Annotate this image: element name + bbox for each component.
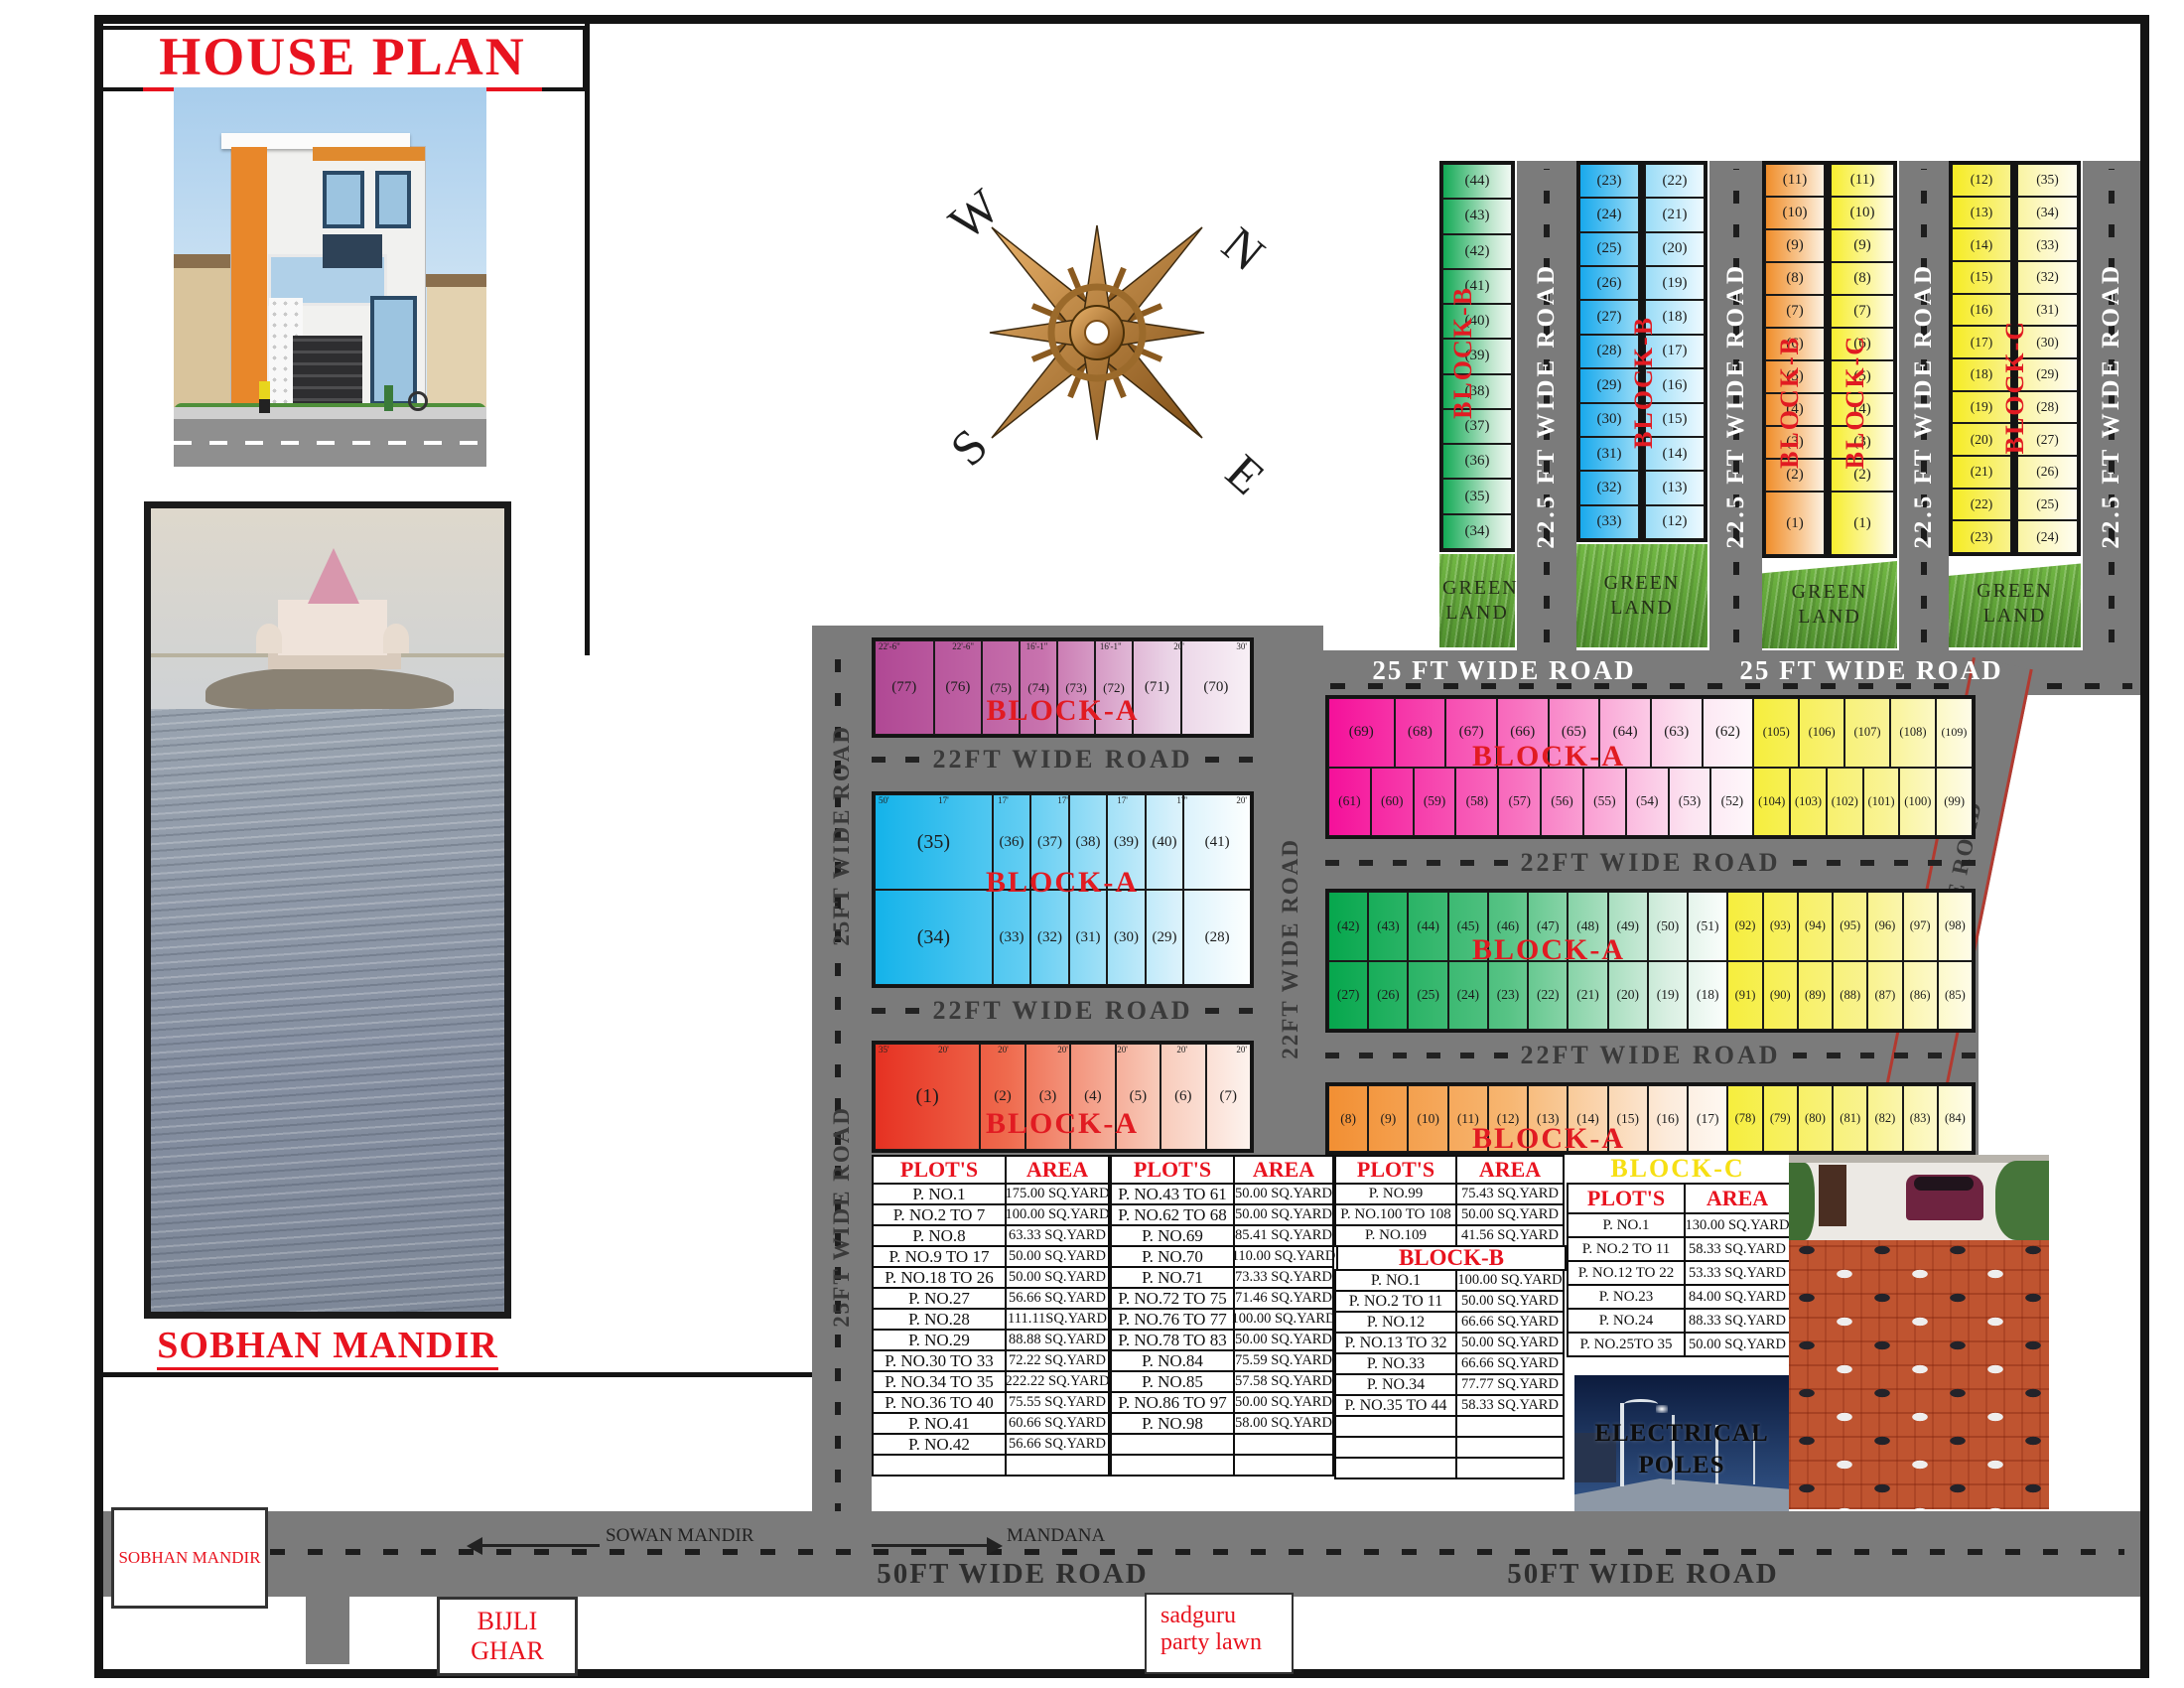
plot-cell: (43) <box>1442 199 1512 233</box>
plot-cell: (31) <box>1069 890 1108 985</box>
plot-cell: (80) <box>1798 1085 1833 1152</box>
area-cell: 50.00 SQ.YARD <box>1684 1332 1791 1357</box>
bicycle-wheel <box>408 391 428 411</box>
plot-cell: (25) <box>1408 961 1447 1031</box>
table-row: P. NO.43 TO 61 50.00 SQ.YARD <box>1112 1183 1336 1205</box>
road-22ft-right-2-dash-l <box>1325 1053 1508 1058</box>
plot-table-2-rows: P. NO.43 TO 61 50.00 SQ.YARD P. NO.62 TO… <box>1112 1183 1336 1477</box>
table-row: P. NO.12 66.66 SQ.YARD <box>1336 1311 1567 1334</box>
plot-no-cell: P. NO.2 TO 11 <box>1567 1236 1686 1262</box>
area-cell: 88.88 SQ.YARD <box>1005 1329 1110 1351</box>
table-row: P. NO.85 57.58 SQ.YARD <box>1112 1370 1336 1393</box>
road-22ft-right-1-label: 22FT WIDE ROAD <box>1520 848 1780 878</box>
area-cell: 66.66 SQ.YARD <box>1455 1352 1565 1375</box>
area-cell: 66.66 SQ.YARD <box>1455 1311 1565 1334</box>
road-225-a: 22.5 FT WIDE ROAD <box>1517 161 1576 650</box>
plot-cell: (98) <box>1938 892 1973 961</box>
plot-cell: (81) <box>1833 1085 1867 1152</box>
table-row: P. NO.86 TO 97 50.00 SQ.YARD <box>1112 1391 1336 1414</box>
road-22ft-left-1-dash-r <box>1205 757 1254 763</box>
house-plan-layout: HOUSE PLAN <box>0 0 2184 1688</box>
block-a-pink-label: BLOCK-A <box>1430 741 1668 773</box>
plot-cell: (8) <box>1328 1085 1368 1152</box>
pink-top-yellow-cells: (105)(106)(107)(108)(109) <box>1753 698 1973 768</box>
dim-label: 17' <box>938 795 949 805</box>
road-22ft-right-2-dash-r <box>1793 1053 1976 1058</box>
green-land-1-label: GREEN LAND <box>1442 576 1512 626</box>
plot-no-cell: P. NO.12 <box>1334 1311 1457 1334</box>
plot-cell: (27) <box>1328 961 1368 1031</box>
plot-no-cell: P. NO.109 <box>1334 1224 1457 1247</box>
plot-no-cell: P. NO.35 TO 44 <box>1334 1394 1457 1417</box>
area-cell: 50.00 SQ.YARD <box>1455 1290 1565 1313</box>
plot-no-cell: P. NO.100 TO 108 <box>1334 1203 1457 1226</box>
plot-cell: (26) <box>1368 961 1408 1031</box>
area-cell: 58.33 SQ.YARD <box>1455 1394 1565 1417</box>
table-row: P. NO.12 TO 22 53.33 SQ.YARD <box>1569 1260 1793 1286</box>
table-row <box>1112 1433 1336 1456</box>
plot-no-cell: P. NO.8 <box>872 1224 1007 1247</box>
plot-cell: (9) <box>1368 1085 1408 1152</box>
plot-cell: (97) <box>1903 892 1938 961</box>
plot-cell: (23) <box>1488 961 1528 1031</box>
area-cell: 50.00 SQ.YARD <box>1005 1245 1110 1268</box>
green-land-2-label: GREEN LAND <box>1602 571 1682 621</box>
plot-cell: (17) <box>1688 1085 1727 1152</box>
plot-no-cell <box>1110 1454 1235 1477</box>
plot-cell: (82) <box>1867 1085 1902 1152</box>
bijli-ghar-label: BIJLI GHAR <box>440 1607 575 1666</box>
dim-label: 17' <box>1176 795 1187 805</box>
road-22ft-right-1-dash-l <box>1325 860 1508 866</box>
table-row: P. NO.1 130.00 SQ.YARD <box>1569 1212 1793 1238</box>
plot-cell: (53) <box>1669 768 1711 837</box>
plot-cell: (52) <box>1710 768 1753 837</box>
title-box: HOUSE PLAN <box>98 26 587 91</box>
road-225-d: 22.5 FT WIDE ROAD <box>2083 161 2140 650</box>
plot-cell: (23) <box>1579 164 1639 198</box>
road-225-d-label: 22.5 FT WIDE ROAD <box>2098 263 2125 549</box>
table-row: P. NO.109 41.56 SQ.YARD <box>1336 1224 1567 1247</box>
plot-cell: (55) <box>1583 768 1626 837</box>
temple-caption: SOBHAN MANDIR <box>157 1324 497 1370</box>
plot-cell: (109) <box>1936 698 1973 768</box>
block-a-green-label: BLOCK-A <box>1430 933 1668 967</box>
dim-label: 20' <box>1236 795 1247 805</box>
plot-cell: (34) <box>875 890 993 985</box>
person-yellow <box>259 381 270 399</box>
block-c-pair-label-wrap: BLOCK-C <box>1997 263 2033 511</box>
pv-paver-pattern <box>1789 1240 2049 1509</box>
table-row: P. NO.24 88.33 SQ.YARD <box>1569 1308 1793 1334</box>
water-ripples <box>151 709 511 1319</box>
plot-table-3-bottom-rows: P. NO.1 100.00 SQ.YARD P. NO.2 TO 11 50.… <box>1336 1269 1567 1479</box>
area-cell: 75.59 SQ.YARD <box>1233 1349 1334 1372</box>
page-title: HOUSE PLAN <box>143 26 542 91</box>
table-row: P. NO.62 TO 68 50.00 SQ.YARD <box>1112 1203 1336 1226</box>
dim-label: 17' <box>1117 795 1128 805</box>
block-c-table-rows: P. NO.1 130.00 SQ.YARD P. NO.2 TO 11 58.… <box>1569 1212 1793 1357</box>
plot-table-3-top-rows: P. NO.99 75.43 SQ.YARD P. NO.100 TO 108 … <box>1336 1183 1567 1247</box>
plot-cell: (79) <box>1763 1085 1798 1152</box>
purple-dims: 22'-6"22'-6"16'-1"16'-1"20'30' <box>879 641 1247 651</box>
mandana-arrow-line <box>872 1544 989 1547</box>
plot-cell: (9) <box>1765 229 1825 262</box>
green-top-yellow-cells: (92)(93)(94)(95)(96)(97)(98) <box>1727 892 1973 961</box>
plot-no-cell: P. NO.98 <box>1110 1412 1235 1435</box>
area-cell: 53.33 SQ.YARD <box>1684 1260 1791 1286</box>
block-c-tag: BLOCK-C <box>1569 1155 1787 1183</box>
plot-cell: (33) <box>2017 228 2078 261</box>
table-row: P. NO.100 TO 108 50.00 SQ.YARD <box>1336 1203 1567 1226</box>
area-cell: 75.55 SQ.YARD <box>1005 1391 1110 1414</box>
table-row: P. NO.42 56.66 SQ.YARD <box>874 1433 1112 1456</box>
dim-label: 17' <box>1057 795 1068 805</box>
plot-cell: (96) <box>1867 892 1902 961</box>
plot-cell: (9) <box>1831 229 1894 262</box>
block-c-pair-label: BLOCK-C <box>2000 320 2030 454</box>
temple-body <box>278 600 387 655</box>
pink-bottom-yellow-cells: (104)(103)(102)(101)(100)(99) <box>1753 768 1973 837</box>
table-row: P. NO.33 66.66 SQ.YARD <box>1336 1352 1567 1375</box>
road-50ft-label-1: 50FT WIDE ROAD <box>854 1559 1171 1589</box>
plot-table-2: PLOT'S AREA P. NO.43 TO 61 50.00 SQ.YARD… <box>1112 1155 1336 1477</box>
plot-no-cell: P. NO.43 TO 61 <box>1110 1183 1235 1205</box>
table-row: P. NO.70 110.00 SQ.YARD <box>1112 1245 1336 1268</box>
plot-cell: (101) <box>1863 768 1900 837</box>
ep-lamp-glow <box>1656 1405 1668 1413</box>
area-cell: 100.00 SQ.YARD <box>1455 1269 1565 1292</box>
plot-cell: (106) <box>1799 698 1844 768</box>
table-row: P. NO.71 73.33 SQ.YARD <box>1112 1266 1336 1289</box>
plot-no-cell: P. NO.84 <box>1110 1349 1235 1372</box>
plot-no-cell: P. NO.85 <box>1110 1370 1235 1393</box>
area-cell: 72.22 SQ.YARD <box>1005 1349 1110 1372</box>
house-window-upper-1 <box>323 171 364 228</box>
dim-label: 20' <box>1176 1045 1187 1055</box>
road-50ft-label-2: 50FT WIDE ROAD <box>1479 1559 1807 1589</box>
area-cell: 58.33 SQ.YARD <box>1684 1236 1791 1262</box>
plot-cell: (24) <box>1448 961 1488 1031</box>
road-22ft-right-1-dash-r <box>1793 860 1976 866</box>
area-cell: 73.33 SQ.YARD <box>1233 1266 1334 1289</box>
green-land-2: GREEN LAND <box>1576 544 1707 647</box>
sobhan-mandir-photo <box>144 501 511 1319</box>
sadguru-box: sadguru party lawn <box>1145 1593 1294 1674</box>
house-window-mid <box>323 234 382 268</box>
dim-label: 22'-6" <box>952 641 974 651</box>
area-cell: 100.00 SQ.YARD <box>1233 1308 1334 1331</box>
plot-no-cell: P. NO.24 <box>1567 1308 1686 1334</box>
plot-no-cell <box>1334 1457 1457 1479</box>
person-green <box>384 385 393 411</box>
table-row: P. NO.98 58.00 SQ.YARD <box>1112 1412 1336 1435</box>
neighbor-house-left <box>174 266 233 410</box>
plot-cell: (32) <box>1030 890 1069 985</box>
temple-dome-right <box>383 624 409 653</box>
table-row: P. NO.2 TO 11 50.00 SQ.YARD <box>1336 1290 1567 1313</box>
dim-label: 16'-1" <box>1026 641 1048 651</box>
plot-no-cell: P. NO.9 TO 17 <box>872 1245 1007 1268</box>
table-row: P. NO.23 84.00 SQ.YARD <box>1569 1284 1793 1310</box>
mandana-arrow-head <box>987 1537 1003 1555</box>
plot-no-cell: P. NO.2 TO 7 <box>872 1203 1007 1226</box>
plot-table-1-rows: P. NO.1 175.00 SQ.YARD P. NO.2 TO 7 100.… <box>874 1183 1112 1477</box>
road-22ft-mid-vertical-label-wrap: 22FT WIDE ROAD <box>1259 774 1322 1122</box>
temple-dome-left <box>256 624 282 653</box>
area-header: AREA <box>1233 1155 1334 1185</box>
block-a-orange-label: BLOCK-A <box>1430 1124 1668 1154</box>
plot-no-cell: P. NO.70 <box>1110 1245 1235 1268</box>
plot-cell: (11) <box>1831 164 1894 197</box>
road-22ft-left-2: 22FT WIDE ROAD <box>872 999 1254 1023</box>
plot-no-cell: P. NO.76 TO 77 <box>1110 1308 1235 1331</box>
sobhan-mandir-box: SOBHAN MANDIR <box>111 1507 268 1609</box>
plot-cell: (85) <box>1938 961 1973 1031</box>
road-22ft-right-2-label: 22FT WIDE ROAD <box>1520 1041 1780 1070</box>
road-stub <box>306 1597 349 1664</box>
block-b-blue-label: BLOCK-B <box>1629 316 1659 449</box>
plot-no-cell: P. NO.41 <box>872 1412 1007 1435</box>
plot-no-cell: P. NO.18 TO 26 <box>872 1266 1007 1289</box>
table-row: P. NO.18 TO 26 50.00 SQ.YARD <box>874 1266 1112 1289</box>
plot-no-cell <box>1334 1436 1457 1459</box>
plot-cell: (104) <box>1753 768 1790 837</box>
block-c-yellow-label-wrap: BLOCK-C <box>1839 278 1872 526</box>
plot-cell: (23) <box>1952 520 2011 553</box>
sowan-arrow-line <box>482 1544 600 1547</box>
area-cell: 75.43 SQ.YARD <box>1455 1183 1565 1205</box>
plot-no-cell: P. NO.33 <box>1334 1352 1457 1375</box>
area-cell: 77.77 SQ.YARD <box>1455 1373 1565 1396</box>
plot-no-cell: P. NO.36 TO 40 <box>872 1391 1007 1414</box>
plot-cell: (91) <box>1727 961 1762 1031</box>
plot-cell: (89) <box>1798 961 1833 1031</box>
plot-no-cell: P. NO.29 <box>872 1329 1007 1351</box>
plot-cell: (10) <box>1831 197 1894 229</box>
block-b-orange-label: BLOCK-B <box>1775 336 1805 469</box>
pink-bottom-row: (61)(60)(59)(58)(57)(56)(55)(54)(53)(52)… <box>1328 768 1973 837</box>
plot-cell: (29) <box>1146 890 1184 985</box>
plots-header: PLOT'S <box>1110 1155 1235 1185</box>
table-row: P. NO.34 TO 35 222.22 SQ.YARD <box>874 1370 1112 1393</box>
road-22ft-left-2-dash-r <box>1205 1008 1254 1014</box>
plot-cell: (99) <box>1936 768 1973 837</box>
plot-cell: (18) <box>1688 961 1727 1031</box>
plot-cell: (22) <box>1645 164 1705 198</box>
block-b-green-label-wrap: BLOCK-B <box>1445 243 1481 462</box>
temple-caption-wrap: SOBHAN MANDIR <box>144 1325 511 1368</box>
dim-label: 20' <box>1236 1045 1247 1055</box>
plot-table-2-header: PLOT'S AREA <box>1112 1155 1336 1185</box>
table-row <box>874 1454 1112 1477</box>
plot-cell: (44) <box>1442 164 1512 199</box>
sidewalk <box>174 407 486 419</box>
plot-no-cell: P. NO.23 <box>1567 1284 1686 1310</box>
plot-no-cell: P. NO.62 TO 68 <box>1110 1203 1235 1226</box>
plot-cell: (21) <box>1568 961 1607 1031</box>
road-22ft-left-2-label: 22FT WIDE ROAD <box>932 996 1192 1026</box>
plot-cell: (22) <box>1528 961 1568 1031</box>
dim-label: 20' <box>1173 641 1184 651</box>
table-row: P. NO.69 85.41 SQ.YARD <box>1112 1224 1336 1247</box>
plot-cell: (7) <box>1206 1044 1251 1150</box>
area-cell: 110.00 SQ.YARD <box>1233 1245 1334 1268</box>
area-cell: 58.00 SQ.YARD <box>1233 1412 1334 1435</box>
plot-cell: (59) <box>1414 768 1456 837</box>
area-header: AREA <box>1455 1155 1565 1185</box>
plot-cell: (83) <box>1903 1085 1938 1152</box>
green-bottom-main-cells: (27)(26)(25)(24)(23)(22)(21)(20)(19)(18) <box>1328 961 1727 1031</box>
house-roof-fascia <box>313 147 425 161</box>
plot-cell: (42) <box>1328 892 1368 961</box>
plot-cell: (33) <box>1579 505 1639 539</box>
green-land-3: GREEN LAND <box>1762 561 1897 648</box>
plot-cell: (21) <box>1645 198 1705 231</box>
plot-cell: (30) <box>1107 890 1146 985</box>
road-225-c-label: 22.5 FT WIDE ROAD <box>1910 263 1938 549</box>
sobhan-mandir-box-label: SOBHAN MANDIR <box>118 1548 260 1568</box>
dim-label: 20' <box>998 1045 1009 1055</box>
plot-cell: (88) <box>1833 961 1867 1031</box>
bijli-ghar-box: BIJLI GHAR <box>437 1597 578 1676</box>
block-b-blue-label-wrap: BLOCK-B <box>1626 263 1662 501</box>
block-a-purple-label: BLOCK-A <box>931 695 1194 727</box>
area-cell: 50.00 SQ.YARD <box>1005 1266 1110 1289</box>
house-window-lower <box>370 296 417 405</box>
dim-label: 50' <box>879 795 889 805</box>
dim-label: 16'-1" <box>1100 641 1122 651</box>
block-a-cyan-bottom-cells: (34)(33)(32)(31)(30)(29)(28) <box>875 890 1251 985</box>
table-row: P. NO.35 TO 44 58.33 SQ.YARD <box>1336 1394 1567 1417</box>
house-garage-door <box>293 336 362 413</box>
plot-cell: (92) <box>1727 892 1762 961</box>
plot-cell: (24) <box>2017 520 2078 553</box>
plot-table-1-header: PLOT'S AREA <box>874 1155 1112 1185</box>
electrical-poles-caption-wrap: ELECTRICAL POLES <box>1574 1415 1789 1484</box>
plots-header: PLOT'S <box>872 1155 1007 1185</box>
plot-cell: (84) <box>1938 1085 1973 1152</box>
table-row: P. NO.13 TO 32 50.00 SQ.YARD <box>1336 1332 1567 1354</box>
plot-no-cell: P. NO.78 TO 83 <box>1110 1329 1235 1351</box>
plot-no-cell: P. NO.25TO 35 <box>1567 1332 1686 1357</box>
plot-cell: (41) <box>1183 794 1251 890</box>
plot-no-cell: P. NO.27 <box>872 1287 1007 1310</box>
house-orange-band <box>231 147 267 410</box>
dim-label: 30' <box>1236 641 1247 651</box>
road-225-b: 22.5 FT WIDE ROAD <box>1709 161 1762 650</box>
area-cell: 85.41 SQ.YARD <box>1233 1224 1334 1247</box>
sadguru-line-2: party lawn <box>1160 1629 1292 1656</box>
plot-no-cell: P. NO.42 <box>872 1433 1007 1456</box>
plot-table-3: PLOT'S AREA P. NO.99 75.43 SQ.YARD P. NO… <box>1336 1155 1567 1479</box>
area-cell: 60.66 SQ.YARD <box>1005 1412 1110 1435</box>
plot-cell: (103) <box>1790 768 1827 837</box>
block-a-red-label: BLOCK-A <box>943 1108 1181 1140</box>
plot-cell: (35) <box>1442 479 1512 513</box>
plot-cell: (12) <box>1952 164 2011 197</box>
pv-plants-right <box>1995 1161 2049 1240</box>
plot-cell: (60) <box>1371 768 1414 837</box>
person-yellow-legs <box>259 399 270 413</box>
plot-no-cell: P. NO.28 <box>872 1308 1007 1331</box>
block-b-green-label: BLOCK-B <box>1448 286 1478 419</box>
road-25ft-top-label-1: 25 FT WIDE ROAD <box>1372 655 1635 686</box>
dim-label: 20' <box>1057 1045 1068 1055</box>
dim-label: 17' <box>998 795 1009 805</box>
table-row: P. NO.2 TO 7 100.00 SQ.YARD <box>874 1203 1112 1226</box>
mandana-label: MANDANA <box>1007 1525 1146 1547</box>
compass-svg: W N S E <box>933 159 1271 506</box>
area-cell: 41.56 SQ.YARD <box>1455 1224 1565 1247</box>
road-22ft-left-1-label: 22FT WIDE ROAD <box>932 745 1192 774</box>
area-cell <box>1455 1457 1565 1479</box>
area-cell <box>1455 1436 1565 1459</box>
road-25ft-top-label-1-wrap: 25 FT WIDE ROAD <box>1340 654 1668 686</box>
plot-cell: (107) <box>1844 698 1890 768</box>
table-row <box>1336 1415 1567 1438</box>
table-row: P. NO.9 TO 17 50.00 SQ.YARD <box>874 1245 1112 1268</box>
plot-cell: (61) <box>1328 768 1371 837</box>
area-cell <box>1233 1454 1334 1477</box>
neighbor-house-right <box>427 286 486 410</box>
plot-no-cell: P. NO.69 <box>1110 1224 1235 1247</box>
plot-cell: (34) <box>1442 514 1512 549</box>
table-row: P. NO.29 88.88 SQ.YARD <box>874 1329 1112 1351</box>
area-cell: 50.00 SQ.YARD <box>1233 1203 1334 1226</box>
area-cell: 50.00 SQ.YARD <box>1233 1391 1334 1414</box>
plot-no-cell: P. NO.99 <box>1334 1183 1457 1205</box>
area-cell: 222.22 SQ.YARD <box>1005 1370 1110 1393</box>
table-row: P. NO.27 56.66 SQ.YARD <box>874 1287 1112 1310</box>
pv-car-windshield <box>1914 1177 1974 1191</box>
road-25ft-left-label-1-wrap: 25FT WIDE ROAD <box>814 671 870 999</box>
plot-no-cell: P. NO.1 <box>872 1183 1007 1205</box>
plot-no-cell <box>1334 1415 1457 1438</box>
green-land-1: GREEN LAND <box>1439 554 1515 647</box>
road-22ft-left-1-dash-l <box>872 757 920 763</box>
pv-plants-left <box>1789 1163 1815 1240</box>
table-row: P. NO.1 175.00 SQ.YARD <box>874 1183 1112 1205</box>
area-cell: 84.00 SQ.YARD <box>1684 1284 1791 1310</box>
area-cell: 50.00 SQ.YARD <box>1455 1332 1565 1354</box>
plot-no-cell: P. NO.1 <box>1567 1212 1686 1238</box>
road-25ft-top-label-2-wrap: 25 FT WIDE ROAD <box>1707 654 2035 686</box>
table-row: P. NO.72 TO 75 71.46 SQ.YARD <box>1112 1287 1336 1310</box>
block-b-orange-label-wrap: BLOCK-B <box>1773 278 1807 526</box>
dim-label: 20' <box>938 1045 949 1055</box>
sadguru-line-1: sadguru <box>1160 1603 1292 1629</box>
table-row: P. NO.8 63.33 SQ.YARD <box>874 1224 1112 1247</box>
green-bottom-row: (27)(26)(25)(24)(23)(22)(21)(20)(19)(18)… <box>1328 961 1973 1031</box>
pv-door <box>1819 1165 1846 1226</box>
area-cell: 100.00 SQ.YARD <box>1005 1203 1110 1226</box>
ep-pole-arm <box>1624 1399 1658 1409</box>
plot-cell: (57) <box>1498 768 1541 837</box>
plot-no-cell: P. NO.72 TO 75 <box>1110 1287 1235 1310</box>
road-225-c: 22.5 FT WIDE ROAD <box>1899 161 1949 650</box>
dim-label: 20' <box>1117 1045 1128 1055</box>
road-25ft-top-label-2: 25 FT WIDE ROAD <box>1739 655 2002 686</box>
plot-cell: (51) <box>1688 892 1727 961</box>
temple-island-rocks <box>205 667 454 709</box>
plot-cell: (54) <box>1626 768 1669 837</box>
compass-south: S <box>939 418 998 477</box>
compass-north: N <box>1212 216 1271 282</box>
plot-cell: (90) <box>1763 961 1798 1031</box>
area-cell: 56.66 SQ.YARD <box>1005 1433 1110 1456</box>
area-cell <box>1005 1454 1110 1477</box>
